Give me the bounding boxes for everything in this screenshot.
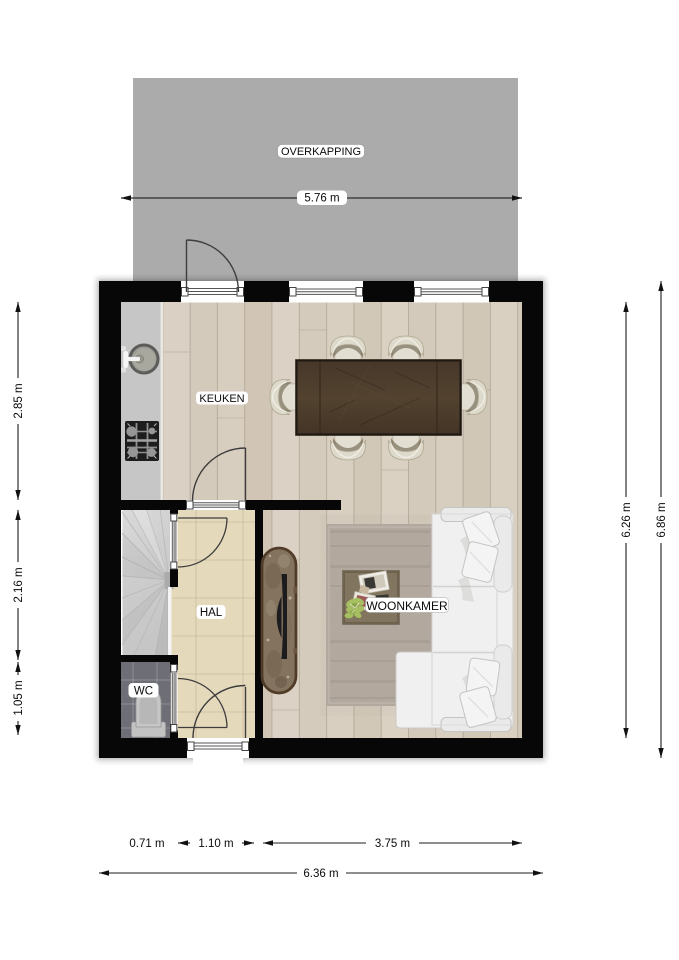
svg-text:6.86 m: 6.86 m	[656, 502, 668, 537]
svg-text:2.16 m: 2.16 m	[13, 567, 25, 602]
svg-text:KEUKEN: KEUKEN	[199, 393, 244, 405]
svg-text:0.71 m: 0.71 m	[129, 838, 164, 850]
svg-text:WC: WC	[134, 686, 153, 698]
svg-text:3.75 m: 3.75 m	[375, 838, 410, 850]
svg-text:WOONKAMER: WOONKAMER	[366, 599, 448, 613]
svg-text:6.26 m: 6.26 m	[621, 502, 633, 537]
svg-text:2.85 m: 2.85 m	[13, 383, 25, 418]
svg-text:HAL: HAL	[200, 607, 223, 619]
svg-text:1.05 m: 1.05 m	[13, 680, 25, 715]
svg-text:1.10 m: 1.10 m	[198, 838, 233, 850]
svg-text:5.76 m: 5.76 m	[304, 193, 339, 205]
svg-text:OVERKAPPING: OVERKAPPING	[281, 146, 361, 158]
svg-text:6.36 m: 6.36 m	[303, 868, 338, 880]
